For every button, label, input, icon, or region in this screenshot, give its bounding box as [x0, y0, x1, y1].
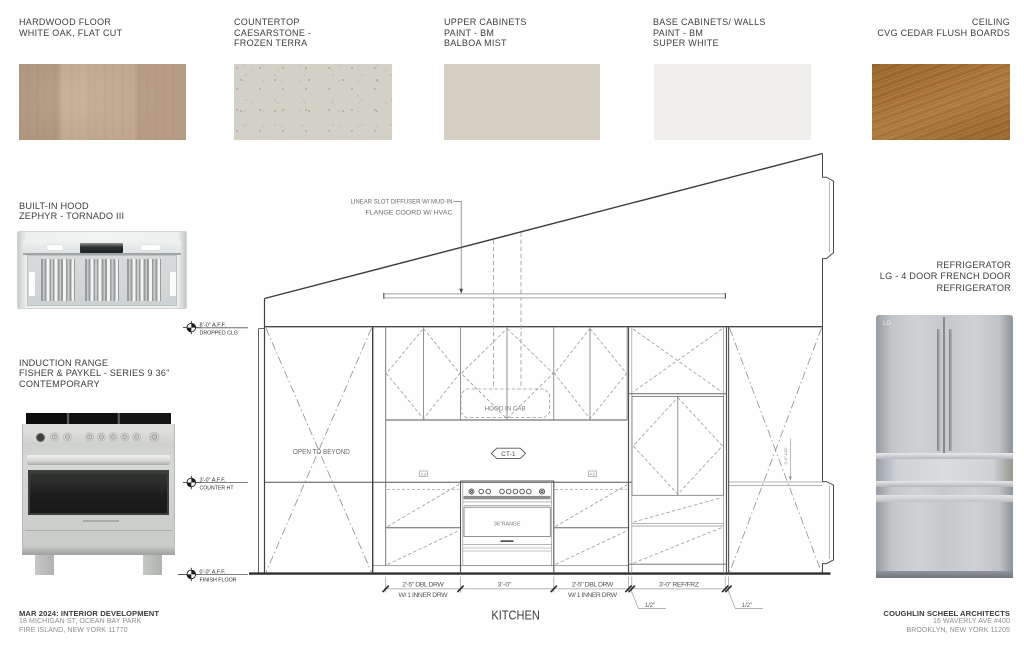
svg-text:8'-0" A.F.F.: 8'-0" A.F.F. — [200, 323, 227, 329]
svg-text:FINISH FLOOR: FINISH FLOOR — [200, 577, 237, 583]
svg-text:FLANGE COORD W/ HVAC: FLANGE COORD W/ HVAC — [366, 209, 454, 216]
svg-text:3'-0" A.F.F.: 3'-0" A.F.F. — [200, 478, 226, 484]
svg-text:W/ 1 INNER DRW: W/ 1 INNER DRW — [399, 592, 449, 599]
svg-text:DROPPED CLG: DROPPED CLG — [200, 331, 239, 337]
svg-text:3'-0" REF/FRZ: 3'-0" REF/FRZ — [659, 581, 699, 588]
svg-text:1/2": 1/2" — [742, 603, 752, 609]
svg-text:2'-5" DBL DRW: 2'-5" DBL DRW — [572, 581, 614, 588]
svg-text:KITCHEN: KITCHEN — [491, 607, 540, 622]
svg-text:3'-0" AFF: 3'-0" AFF — [783, 447, 788, 465]
svg-text:1/2": 1/2" — [645, 603, 655, 609]
svg-text:3'-0": 3'-0" — [498, 581, 513, 588]
svg-text:LINEAR SLOT DIFFUSER W/ MUD-IN: LINEAR SLOT DIFFUSER W/ MUD-IN — [351, 199, 453, 206]
svg-text:2'-5" DBL DRW: 2'-5" DBL DRW — [402, 581, 444, 588]
svg-text:K9: K9 — [421, 472, 427, 477]
svg-text:CT-1: CT-1 — [501, 451, 516, 458]
svg-text:K9: K9 — [590, 472, 596, 477]
svg-text:0'-0" A.F.F.: 0'-0" A.F.F. — [200, 569, 226, 575]
svg-text:W/ 1 INNER DRW: W/ 1 INNER DRW — [568, 592, 618, 599]
svg-text:COUNTER HT: COUNTER HT — [200, 486, 234, 492]
svg-text:36"RANGE: 36"RANGE — [494, 521, 521, 527]
svg-text:OPEN TO BEYOND: OPEN TO BEYOND — [293, 447, 350, 456]
svg-text:HOOD IN CAB: HOOD IN CAB — [485, 406, 526, 412]
